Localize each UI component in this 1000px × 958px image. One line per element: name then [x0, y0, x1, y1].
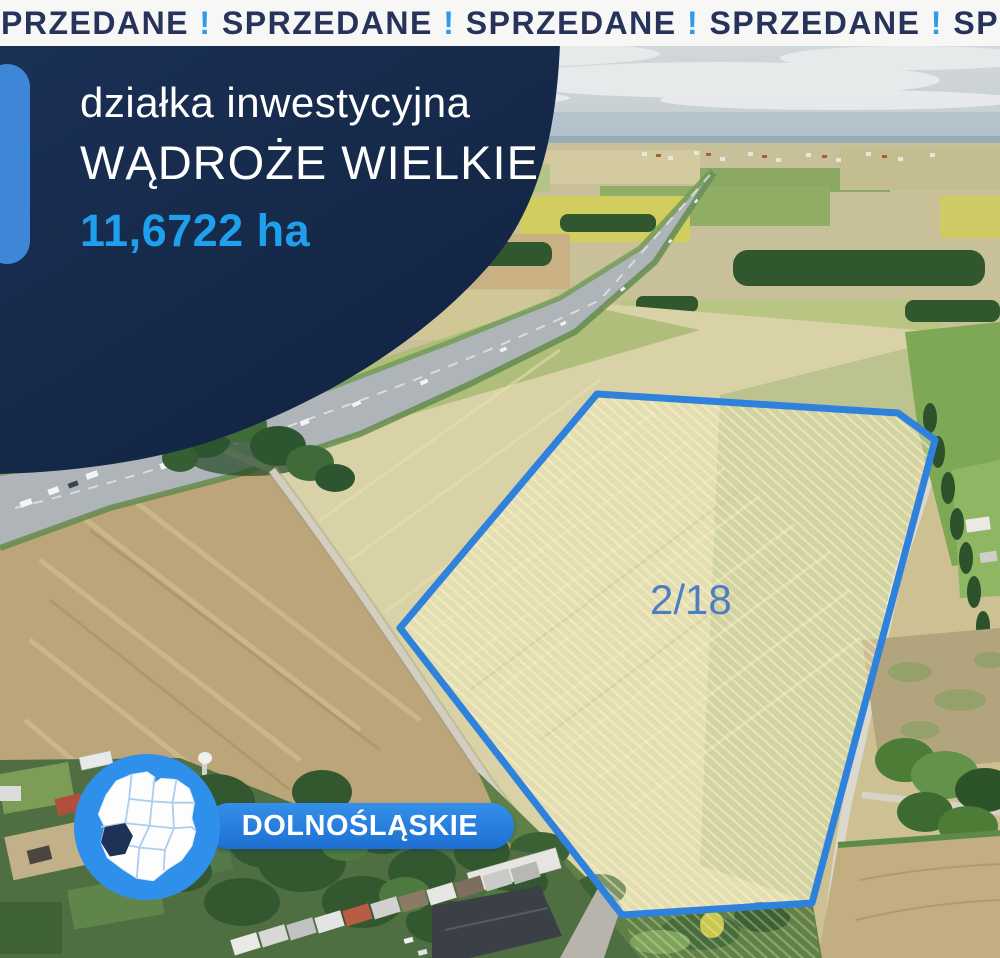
region-label: DOLNOŚLĄSKIE [242, 810, 478, 843]
sold-banner: PRZEDANE ! SPRZEDANE ! SPRZEDANE ! SPRZE… [0, 0, 1000, 46]
listing-card-text: działka inwestycyjna WĄDROŻE WIELKIE 11,… [80, 80, 539, 255]
poland-map-badge [74, 754, 220, 900]
listing-area: 11,6722 ha [80, 206, 539, 256]
listing-subtitle: działka inwestycyjna [80, 80, 539, 126]
white-house [0, 786, 21, 801]
poland-map-icon [83, 763, 211, 891]
parcel-label: 2/18 [650, 576, 732, 623]
listing-title: WĄDROŻE WIELKIE [80, 137, 539, 189]
overpass-bridge [115, 395, 166, 417]
listing-poster: 2/18 działka inwestycyjna WĄDROŻE WIELKI… [0, 0, 1000, 958]
sold-banner-text: PRZEDANE ! SPRZEDANE ! SPRZEDANE ! SPRZE… [0, 5, 999, 42]
bottom-right-field [818, 833, 1000, 958]
blob-accent-bar [0, 64, 30, 264]
region-pill: DOLNOŚLĄSKIE [206, 803, 514, 849]
